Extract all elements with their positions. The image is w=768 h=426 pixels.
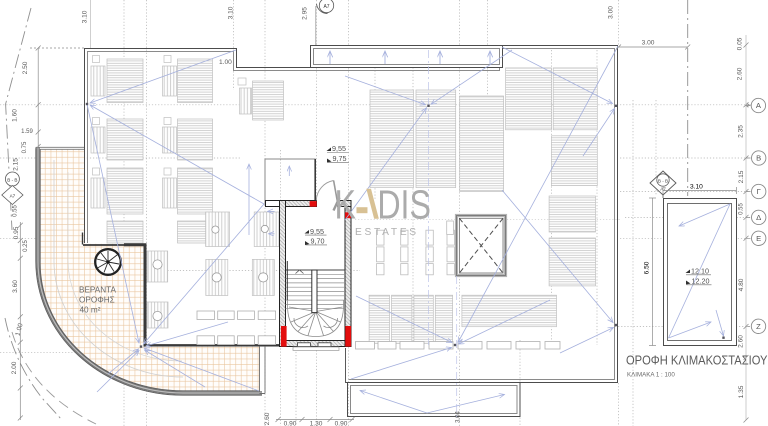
svg-text:B - B: B - B	[658, 178, 668, 183]
svg-text:2.00: 2.00	[11, 361, 18, 374]
svg-text:2.60: 2.60	[264, 412, 271, 425]
svg-text:0.25: 0.25	[23, 240, 29, 252]
svg-text:K: K	[335, 182, 357, 228]
svg-text:3.00: 3.00	[642, 40, 655, 47]
svg-text:A7: A7	[323, 4, 329, 10]
svg-text:1.35: 1.35	[738, 385, 745, 398]
svg-text:2.15: 2.15	[738, 170, 745, 183]
svg-text:12.10: 12.10	[691, 267, 709, 276]
svg-text:9,75: 9,75	[333, 154, 347, 163]
svg-text:4.80: 4.80	[738, 278, 745, 291]
svg-text:40 m²: 40 m²	[80, 306, 101, 315]
svg-text:Z: Z	[756, 322, 761, 331]
svg-text:E: E	[756, 234, 761, 243]
svg-text:B - B: B - B	[7, 177, 17, 182]
svg-text:Δ: Δ	[756, 213, 761, 222]
svg-text:0.90: 0.90	[335, 421, 348, 426]
svg-text:3.10: 3.10	[690, 184, 703, 191]
svg-text:2.60: 2.60	[737, 67, 744, 80]
svg-text:2.95: 2.95	[302, 7, 309, 20]
svg-text:3.10: 3.10	[82, 10, 89, 23]
svg-text:Γ: Γ	[757, 187, 761, 196]
svg-text:1.00: 1.00	[219, 59, 232, 66]
svg-text:1.60: 1.60	[12, 109, 19, 122]
svg-text:2.15: 2.15	[13, 158, 20, 171]
svg-text:3.60: 3.60	[12, 280, 19, 293]
svg-text:ΟΡΟΦΗ ΚΛΙΜΑΚΟΣΤΑΣΙΟΥ: ΟΡΟΦΗ ΚΛΙΜΑΚΟΣΤΑΣΙΟΥ	[626, 354, 768, 368]
svg-text:D: D	[377, 182, 400, 228]
svg-text:2.35: 2.35	[738, 125, 745, 138]
svg-text:12.20: 12.20	[692, 277, 710, 286]
svg-text:2.50: 2.50	[22, 61, 29, 74]
svg-text:0.55: 0.55	[13, 205, 19, 217]
svg-text:0.05: 0.05	[737, 37, 744, 50]
svg-text:0.95: 0.95	[13, 226, 20, 239]
svg-text:0.90: 0.90	[284, 421, 297, 426]
svg-text:ΚΛΙΜΑΚΑ 1 : 100: ΚΛΙΜΑΚΑ 1 : 100	[627, 372, 675, 379]
svg-text:ΒΕΡΑΝΤΑ: ΒΕΡΑΝΤΑ	[79, 286, 117, 295]
svg-text:9,55: 9,55	[310, 227, 324, 236]
svg-text:9,70: 9,70	[311, 237, 325, 246]
svg-text:B: B	[756, 154, 761, 163]
svg-text:1.30: 1.30	[310, 421, 323, 426]
svg-text:2.60: 2.60	[738, 335, 745, 348]
svg-text:3.00: 3.00	[608, 6, 615, 19]
svg-text:S: S	[409, 182, 430, 228]
svg-text:3.10: 3.10	[228, 6, 235, 19]
svg-text:6.50: 6.50	[644, 261, 651, 274]
svg-text:0.75: 0.75	[22, 141, 28, 153]
svg-text:ESTATES: ESTATES	[355, 227, 419, 238]
svg-text:3.04: 3.04	[456, 411, 462, 423]
svg-text:A7: A7	[10, 193, 16, 198]
svg-text:I: I	[401, 182, 410, 228]
svg-text:0.55: 0.55	[739, 203, 745, 215]
svg-text:ΟΡΟΦΗΣ: ΟΡΟΦΗΣ	[79, 296, 115, 305]
svg-text:9,55: 9,55	[332, 144, 346, 153]
svg-text:1.59: 1.59	[21, 129, 33, 135]
